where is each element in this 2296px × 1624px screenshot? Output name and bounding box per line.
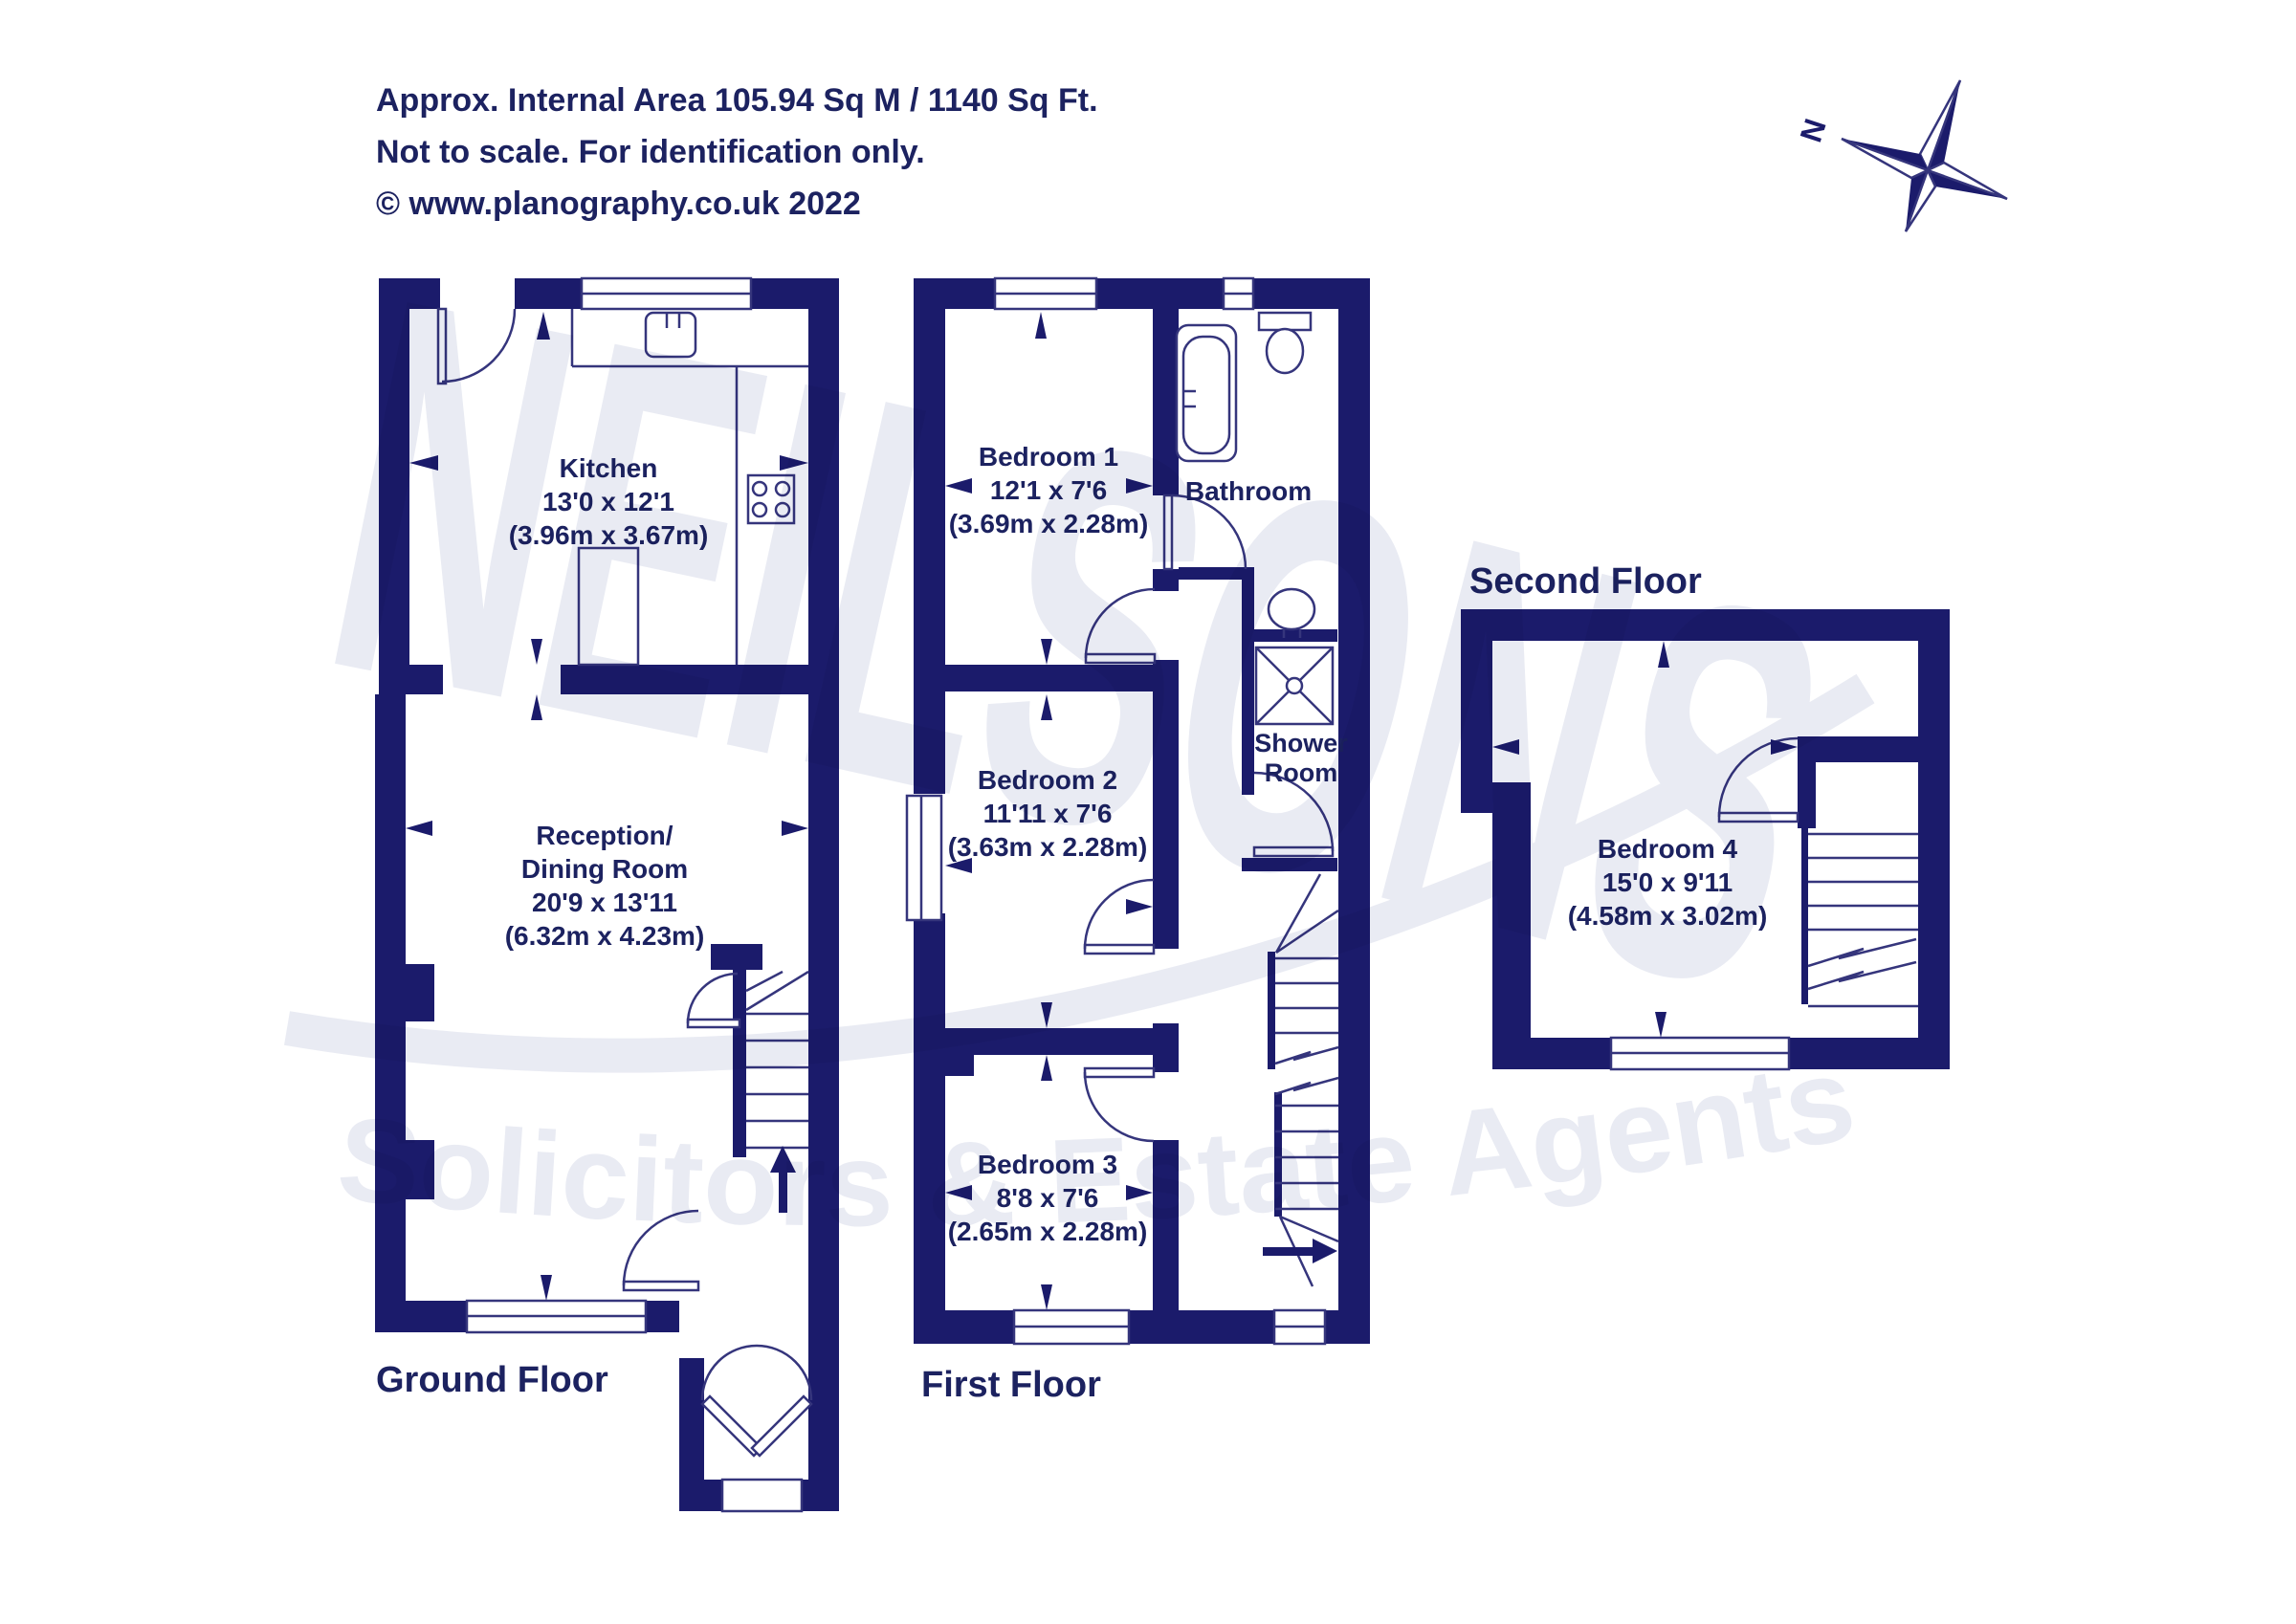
kitchen-door xyxy=(438,309,515,384)
bedroom2-door xyxy=(1085,880,1154,954)
room-name2: Room xyxy=(1254,758,1348,788)
room-name: Reception/ xyxy=(505,819,705,852)
toilet-bowl xyxy=(1267,329,1303,373)
room-dims: 12'1 x 7'6 xyxy=(949,473,1149,507)
kitchen-label: Kitchen 13'0 x 12'1 (3.96m x 3.67m) xyxy=(509,451,709,552)
header-copyright-line: © www.planography.co.uk 2022 xyxy=(376,184,861,225)
room-name: Bedroom 3 xyxy=(948,1148,1148,1181)
room-name: Bathroom xyxy=(1185,474,1312,508)
room-metric: (3.63m x 2.28m) xyxy=(948,830,1148,864)
kitchen-sink xyxy=(646,313,695,357)
bedroom1-door xyxy=(1086,589,1155,663)
room-metric: (6.32m x 4.23m) xyxy=(505,919,705,953)
compass-rose xyxy=(1842,80,2007,231)
bedroom3-label: Bedroom 3 8'8 x 7'6 (2.65m x 2.28m) xyxy=(948,1148,1148,1248)
room-metric: (4.58m x 3.02m) xyxy=(1568,899,1768,933)
kitchen-unit xyxy=(579,548,638,665)
toilet-cistern xyxy=(1259,313,1311,330)
ground-floor-stairs xyxy=(746,972,808,1213)
shower-tray xyxy=(1256,647,1333,724)
bedroom4-door xyxy=(1719,738,1798,822)
room-metric: (2.65m x 2.28m) xyxy=(948,1215,1148,1248)
room-dims: 20'9 x 13'11 xyxy=(505,886,705,919)
first-floor-title: First Floor xyxy=(921,1363,1101,1409)
stairs-up-arrow xyxy=(779,1171,787,1213)
reception-label: Reception/ Dining Room 20'9 x 13'11 (6.3… xyxy=(505,819,705,953)
basin xyxy=(1269,589,1314,629)
bedroom1-label: Bedroom 1 12'1 x 7'6 (3.69m x 2.28m) xyxy=(949,440,1149,540)
room-dims: 11'11 x 7'6 xyxy=(948,797,1148,830)
room-name2: Dining Room xyxy=(505,852,705,886)
room-metric: (3.69m x 2.28m) xyxy=(949,507,1149,540)
first-floor-stairs xyxy=(1263,874,1338,1286)
room-name: Bedroom 2 xyxy=(948,763,1148,797)
room-name: Bedroom 4 xyxy=(1568,832,1768,866)
bathroom-label: Bathroom xyxy=(1185,474,1312,508)
room-name: Kitchen xyxy=(509,451,709,485)
floorplan-graphics: .w{fill:#1b1b6b;stroke:none;} .tl{stroke… xyxy=(0,0,2296,1624)
bedroom3-door xyxy=(1085,1068,1154,1141)
ground-floor-title: Ground Floor xyxy=(376,1358,608,1404)
stairs-up-arrow xyxy=(1263,1247,1313,1256)
floorplan-page: .w{fill:#1b1b6b;stroke:none;} .tl{stroke… xyxy=(0,0,2296,1624)
bedroom4-label: Bedroom 4 15'0 x 9'11 (4.58m x 3.02m) xyxy=(1568,832,1768,933)
second-floor-window xyxy=(1611,1038,1789,1069)
room-dims: 15'0 x 9'11 xyxy=(1568,866,1768,899)
room-name: Bedroom 1 xyxy=(949,440,1149,473)
room-dims: 8'8 x 7'6 xyxy=(948,1181,1148,1215)
second-floor-title: Second Floor xyxy=(1469,560,1702,605)
stair-door xyxy=(688,974,740,1027)
room-metric: (3.96m x 3.67m) xyxy=(509,518,709,552)
second-floor-stairs xyxy=(1808,834,1918,1006)
header-area-line: Approx. Internal Area 105.94 Sq M / 1140… xyxy=(376,80,1098,121)
room-name: Shower xyxy=(1254,729,1348,758)
reception-door xyxy=(624,1211,698,1290)
bedroom2-label: Bedroom 2 11'11 x 7'6 (3.63m x 2.28m) xyxy=(948,763,1148,864)
room-dims: 13'0 x 12'1 xyxy=(509,485,709,518)
porch-double-doors xyxy=(702,1346,811,1456)
shower-room-label: Shower Room xyxy=(1254,729,1348,788)
header-scale-line: Not to scale. For identification only. xyxy=(376,132,925,173)
